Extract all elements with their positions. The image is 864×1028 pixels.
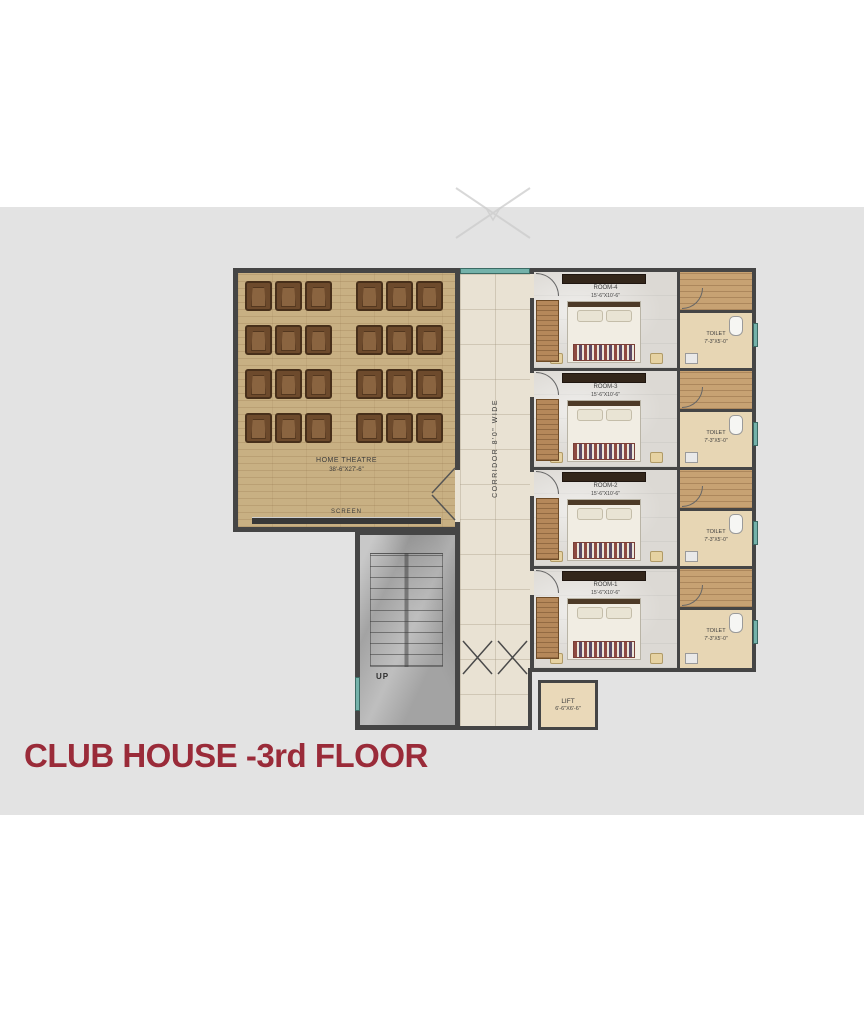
toilet-column: TOILET 7'-3"X5'-0" xyxy=(680,569,752,668)
theatre-seat xyxy=(386,281,413,311)
bedside-stool xyxy=(650,452,663,463)
pillow xyxy=(606,409,632,421)
wardrobe xyxy=(536,300,559,362)
wardrobe xyxy=(536,399,559,461)
entry-passage xyxy=(680,569,752,607)
theatre-seat xyxy=(416,325,443,355)
theatre-seat xyxy=(416,281,443,311)
toilet-label: TOILET xyxy=(680,430,752,436)
passage-door-swing-icon xyxy=(682,486,703,507)
page-title: CLUB HOUSE -3rd FLOOR xyxy=(24,737,428,775)
theatre-seat xyxy=(356,413,383,443)
room: ROOM-4 15'-6"X10'-6" xyxy=(534,272,677,368)
theatre-label: HOME THEATRE xyxy=(238,457,455,464)
toilet-label: TOILET xyxy=(680,628,752,634)
north-compass-icon xyxy=(438,178,548,248)
toilet: TOILET 7'-3"X5'-0" xyxy=(680,409,752,467)
corridor-label-wrap: CORRIDOR 8'0" WIDE xyxy=(460,328,530,568)
bed xyxy=(567,301,641,363)
theatre-seat xyxy=(305,281,332,311)
theatre-seat xyxy=(356,369,383,399)
toilet-column: TOILET 7'-3"X5'-0" xyxy=(680,371,752,467)
room: ROOM-2 15'-6"X10'-6" xyxy=(534,470,677,566)
room: ROOM-3 15'-6"X10'-6" xyxy=(534,371,677,467)
toilet-dimensions: 7'-3"X5'-0" xyxy=(680,537,752,543)
screen-label: SCREEN xyxy=(238,509,455,515)
theatre-seats-left-block xyxy=(245,281,332,443)
toilet-column: TOILET 7'-3"X5'-0" xyxy=(680,272,752,368)
entry-passage xyxy=(680,272,752,310)
toilet: TOILET 7'-3"X5'-0" xyxy=(680,508,752,566)
theatre-seat xyxy=(356,281,383,311)
pillow xyxy=(577,607,603,619)
corridor-label: CORRIDOR 8'0" WIDE xyxy=(492,399,499,498)
toilet-column: TOILET 7'-3"X5'-0" xyxy=(680,470,752,566)
toilet-window xyxy=(753,620,758,644)
theatre-seat xyxy=(275,325,302,355)
bed xyxy=(567,598,641,660)
room-label: ROOM-1 xyxy=(534,582,677,588)
sink-icon xyxy=(685,653,698,664)
toilet-dimensions: 7'-3"X5'-0" xyxy=(680,438,752,444)
dresser xyxy=(562,472,646,482)
theatre-seat xyxy=(356,325,383,355)
room: ROOM-1 15'-6"X10'-6" xyxy=(534,569,677,668)
wardrobe xyxy=(536,597,559,659)
toilet-dimensions: 7'-3"X5'-0" xyxy=(680,636,752,642)
bed-headboard xyxy=(568,302,640,307)
corridor-top-window xyxy=(460,268,530,274)
bedside-stool xyxy=(650,353,663,364)
toilet-label: TOILET xyxy=(680,529,752,535)
dresser xyxy=(562,571,646,581)
theatre-seats-right-block xyxy=(356,281,443,443)
sink-icon xyxy=(685,452,698,463)
room-label: ROOM-3 xyxy=(534,384,677,390)
toilet: TOILET 7'-3"X5'-0" xyxy=(680,310,752,368)
bedside-stool xyxy=(650,653,663,664)
stairs-window xyxy=(355,677,360,711)
lift-dimensions: 6'-6"X6'-6" xyxy=(555,706,581,712)
theatre-seat xyxy=(416,413,443,443)
theatre-dimensions: 38'-6"X27'-6" xyxy=(238,467,455,473)
bed-headboard xyxy=(568,599,640,604)
stairs-up-label: UP xyxy=(376,672,389,681)
room-unit-4: ROOM-4 15'-6"X10'-6" xyxy=(534,272,752,371)
room-label: ROOM-4 xyxy=(534,285,677,291)
theatre-seat xyxy=(275,369,302,399)
bed-blanket xyxy=(573,344,635,361)
entry-passage xyxy=(680,470,752,508)
theatre-seat xyxy=(305,325,332,355)
pillow xyxy=(606,508,632,520)
theatre-seat xyxy=(416,369,443,399)
theatre-seat xyxy=(386,325,413,355)
room-unit-1: ROOM-1 15'-6"X10'-6" xyxy=(534,569,752,668)
theatre-seat xyxy=(245,413,272,443)
lift-label: LIFT xyxy=(561,698,574,705)
sink-icon xyxy=(685,353,698,364)
pillow xyxy=(577,508,603,520)
bed xyxy=(567,499,641,561)
stair-treads xyxy=(370,553,443,667)
bedside-stool xyxy=(650,551,663,562)
sink-icon xyxy=(685,551,698,562)
bed-blanket xyxy=(573,443,635,460)
corridor-bottom-wall xyxy=(455,726,532,730)
room-unit-3: ROOM-3 15'-6"X10'-6" xyxy=(534,371,752,470)
toilet-window xyxy=(753,422,758,446)
toilet: TOILET 7'-3"X5'-0" xyxy=(680,607,752,668)
pillow xyxy=(606,310,632,322)
passage-door-swing-icon xyxy=(682,288,703,309)
theatre-seat xyxy=(245,369,272,399)
theatre-seat xyxy=(305,413,332,443)
theatre-seat xyxy=(245,281,272,311)
room-unit-2: ROOM-2 15'-6"X10'-6" xyxy=(534,470,752,569)
dresser xyxy=(562,373,646,383)
bed xyxy=(567,400,641,462)
theatre-seat xyxy=(305,369,332,399)
staircase: UP xyxy=(355,530,460,730)
theatre-seat xyxy=(245,325,272,355)
theatre-seat xyxy=(386,413,413,443)
rooms-wing: ROOM-4 15'-6"X10'-6" xyxy=(530,268,756,672)
theatre-double-door-icon xyxy=(427,466,457,522)
pillow xyxy=(577,409,603,421)
bed-blanket xyxy=(573,542,635,559)
room-dimensions: 15'-6"X10'-6" xyxy=(534,491,677,497)
screen-bar xyxy=(252,517,441,524)
theatre-seat xyxy=(275,413,302,443)
theatre-seat xyxy=(275,281,302,311)
pillow xyxy=(606,607,632,619)
bed-headboard xyxy=(568,500,640,505)
pillow xyxy=(577,310,603,322)
toilet-label: TOILET xyxy=(680,331,752,337)
home-theatre-room: HOME THEATRE 38'-6"X27'-6" SCREEN xyxy=(233,268,460,532)
lift: LIFT 6'-6"X6'-6" xyxy=(538,680,598,730)
room-dimensions: 15'-6"X10'-6" xyxy=(534,392,677,398)
toilet-window xyxy=(753,323,758,347)
corridor-right-wall xyxy=(528,668,532,730)
theatre-seat xyxy=(386,369,413,399)
room-dimensions: 15'-6"X10'-6" xyxy=(534,293,677,299)
room-label: ROOM-2 xyxy=(534,483,677,489)
floor-plan-canvas: HOME THEATRE 38'-6"X27'-6" SCREEN CORRID… xyxy=(0,0,864,1028)
bed-blanket xyxy=(573,641,635,658)
corridor: CORRIDOR 8'0" WIDE xyxy=(460,268,530,730)
entry-passage xyxy=(680,371,752,409)
dresser xyxy=(562,274,646,284)
corridor-double-door-icon xyxy=(460,638,530,678)
passage-door-swing-icon xyxy=(682,387,703,408)
toilet-dimensions: 7'-3"X5'-0" xyxy=(680,339,752,345)
room-dimensions: 15'-6"X10'-6" xyxy=(534,590,677,596)
bed-headboard xyxy=(568,401,640,406)
wardrobe xyxy=(536,498,559,560)
passage-door-swing-icon xyxy=(682,585,703,606)
toilet-window xyxy=(753,521,758,545)
